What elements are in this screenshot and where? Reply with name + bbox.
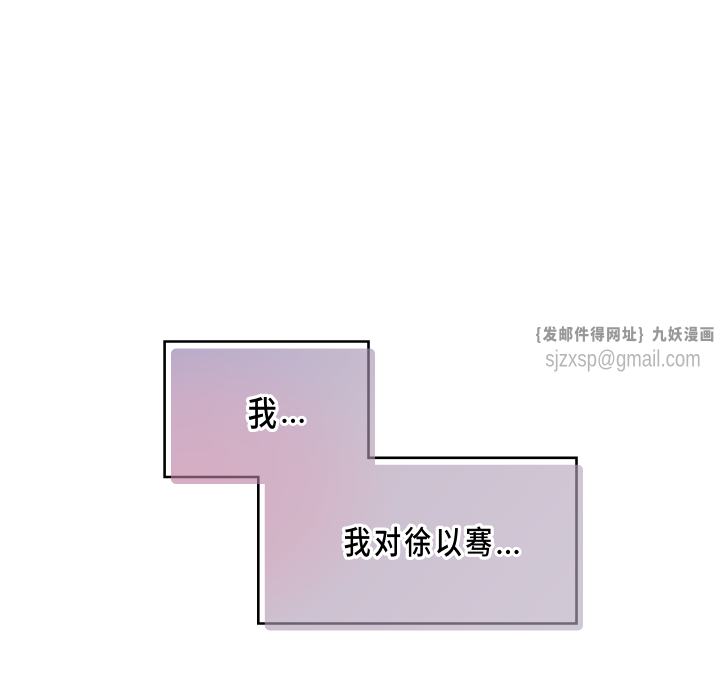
svg-text:sjzxsp@gmail.com: sjzxsp@gmail.com	[545, 347, 701, 372]
